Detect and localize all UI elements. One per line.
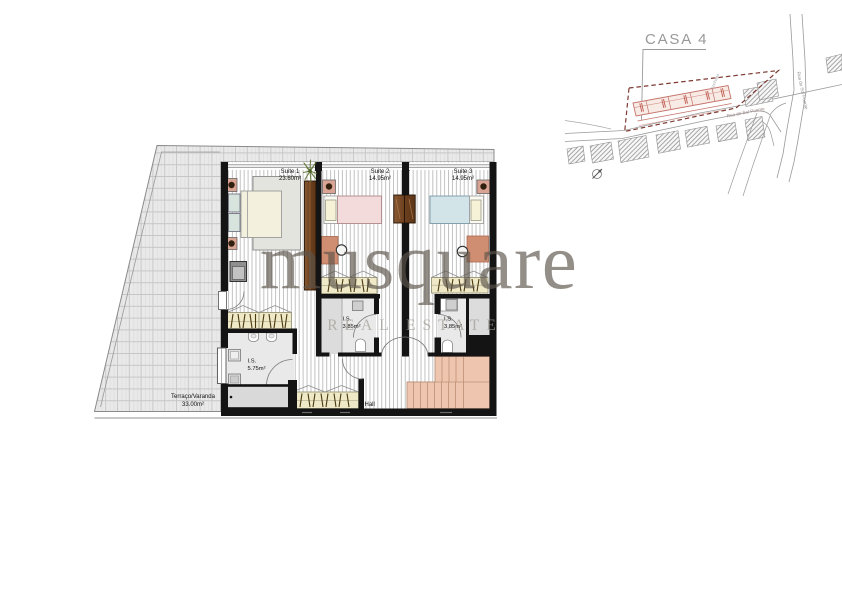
svg-text:CASA 4: CASA 4: [645, 31, 708, 48]
svg-text:REAL ESTATE: REAL ESTATE: [327, 317, 503, 334]
svg-text:Suite 3: Suite 3: [454, 169, 473, 175]
svg-text:musquare: musquare: [260, 219, 578, 306]
svg-text:Suite 2: Suite 2: [371, 169, 390, 175]
svg-text:33.00m²: 33.00m²: [182, 402, 204, 408]
svg-text:5.75m²: 5.75m²: [248, 366, 266, 372]
svg-text:Hall: Hall: [365, 402, 375, 408]
svg-text:23.60m²: 23.60m²: [279, 176, 301, 182]
svg-text:14.95m²: 14.95m²: [452, 176, 474, 182]
svg-text:Suite 1: Suite 1: [281, 169, 300, 175]
svg-text:I.S.: I.S.: [248, 359, 257, 365]
svg-text:Terraço/Varanda: Terraço/Varanda: [171, 394, 216, 400]
svg-text:14.95m²: 14.95m²: [369, 176, 391, 182]
